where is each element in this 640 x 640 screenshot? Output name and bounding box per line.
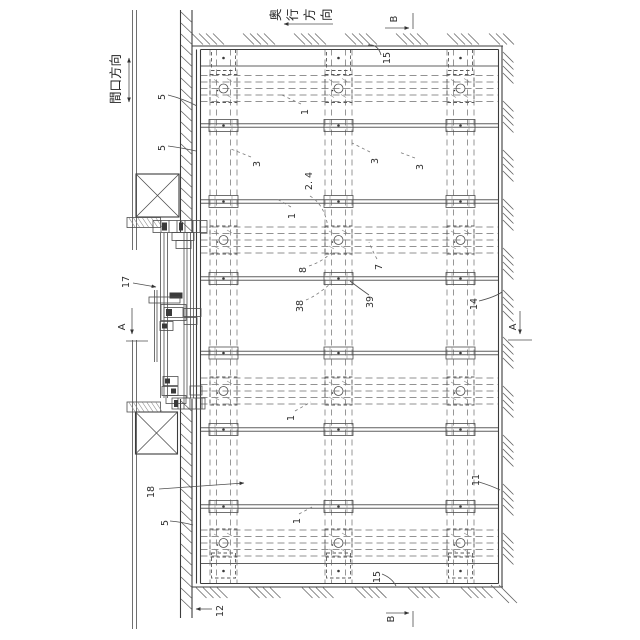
callout-1: 1: [300, 109, 311, 115]
depth-direction-label: 奥行方向: [268, 4, 334, 21]
callout-3: 3: [370, 158, 381, 164]
callout-1: 1: [287, 213, 298, 219]
section-a-right-letter: A: [508, 323, 519, 330]
wall-hatch-marks: [192, 34, 517, 604]
callout-17: 17: [121, 276, 132, 288]
section-a-left-letter: A: [117, 323, 128, 330]
left-wall-section: [127, 10, 192, 629]
callout-5: 5: [157, 94, 168, 100]
callout-1: 1: [292, 518, 303, 524]
section-b-top-letter: B: [389, 15, 400, 22]
callout-11: 11: [471, 474, 482, 486]
floor-plan-drawing: 奥行方向 間口方向 5 5 5 15 15 1 1 1 1 3 3 3 2. 4…: [0, 0, 640, 640]
joist-strips: [210, 50, 474, 584]
callout-15: 15: [382, 52, 393, 64]
callout-5: 5: [157, 145, 168, 151]
connector-boxes: [209, 50, 475, 579]
callout-38: 38: [295, 300, 306, 312]
patent-drawing-page: 奥行方向 間口方向 5 5 5 15 15 1 1 1 1 3 3 3 2. 4…: [0, 0, 640, 640]
callout-18: 18: [146, 486, 157, 498]
callout-12: 12: [215, 605, 226, 617]
frontage-direction-label: 間口方向: [108, 54, 123, 104]
callout-15: 15: [372, 571, 383, 583]
callout-39: 39: [365, 296, 376, 308]
callout-7: 7: [374, 264, 385, 270]
callout-3: 3: [415, 164, 426, 170]
window-sash-details: [149, 221, 207, 410]
callout-8: 8: [298, 267, 309, 273]
callout-3: 3: [252, 161, 263, 167]
callout-2-4: 2. 4: [304, 172, 315, 190]
callout-14: 14: [469, 298, 480, 310]
callout-5: 5: [160, 520, 171, 526]
section-b-bottom-letter: B: [386, 615, 397, 622]
callout-1: 1: [286, 415, 297, 421]
